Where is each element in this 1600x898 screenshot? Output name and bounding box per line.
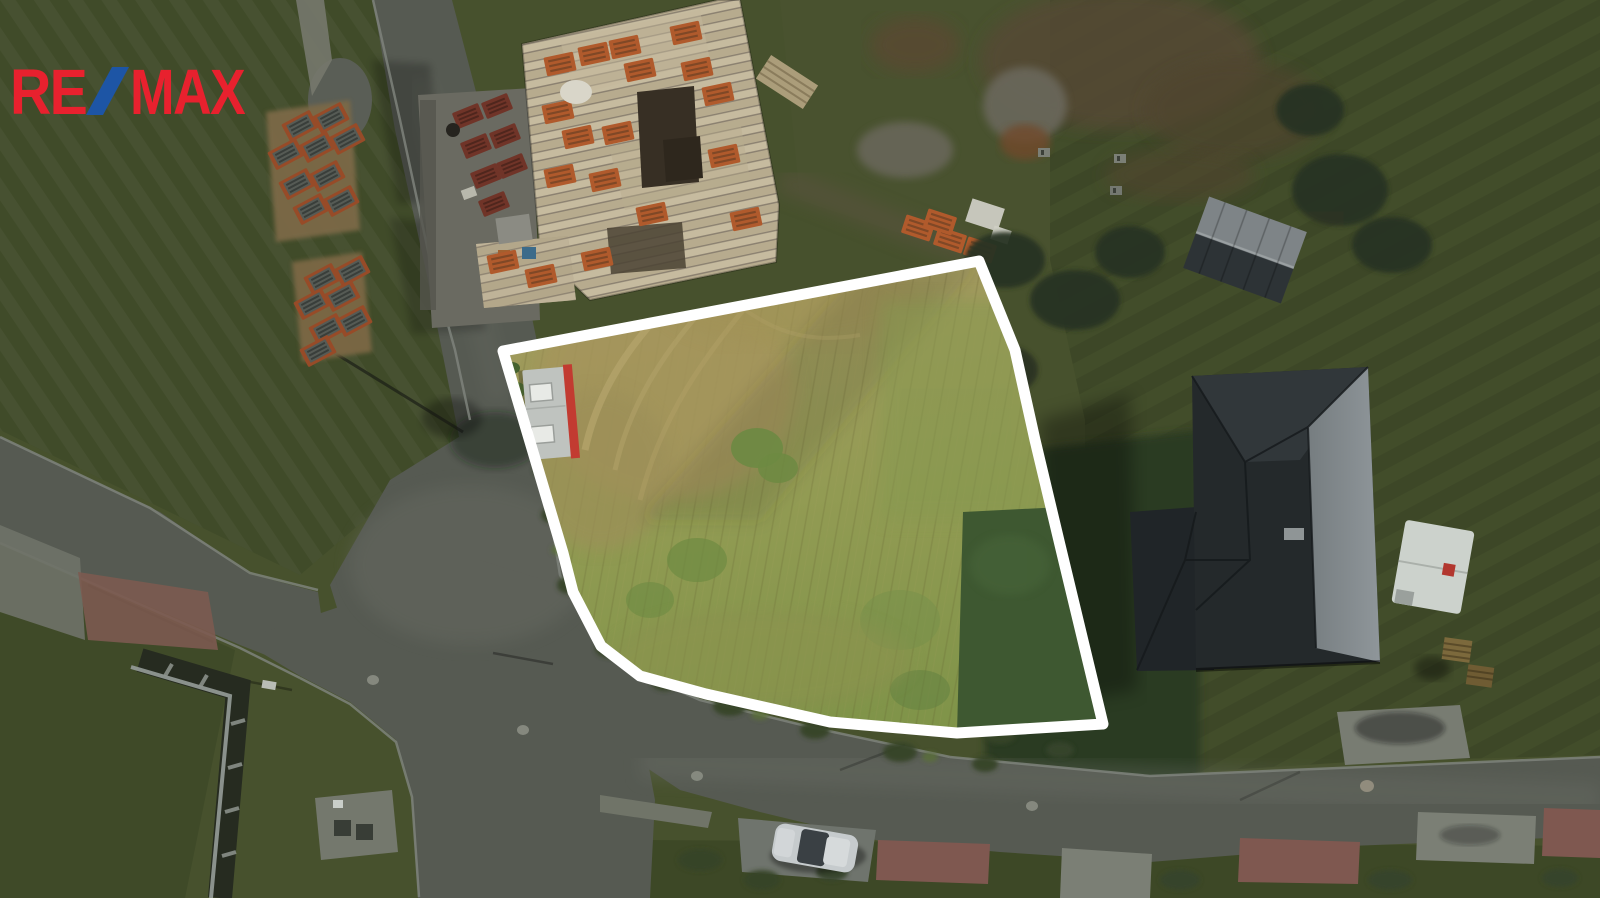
logo-max: MAX (130, 56, 246, 128)
logo-re: RE (10, 56, 86, 128)
sidewalk (1060, 848, 1152, 898)
aerial-listing-photo: RE MAX (0, 0, 1600, 898)
aerial-scene: RE MAX (0, 0, 1600, 898)
paver-apron (1542, 808, 1600, 858)
site-container (495, 214, 532, 244)
gravel-pile (857, 122, 953, 178)
red-marker (1442, 563, 1456, 577)
skylight (1284, 528, 1304, 540)
barrel (446, 123, 460, 137)
paver-apron (876, 840, 990, 884)
white-shed (1391, 520, 1475, 615)
paver-apron (1238, 838, 1360, 884)
tarp-bundle (560, 80, 592, 104)
